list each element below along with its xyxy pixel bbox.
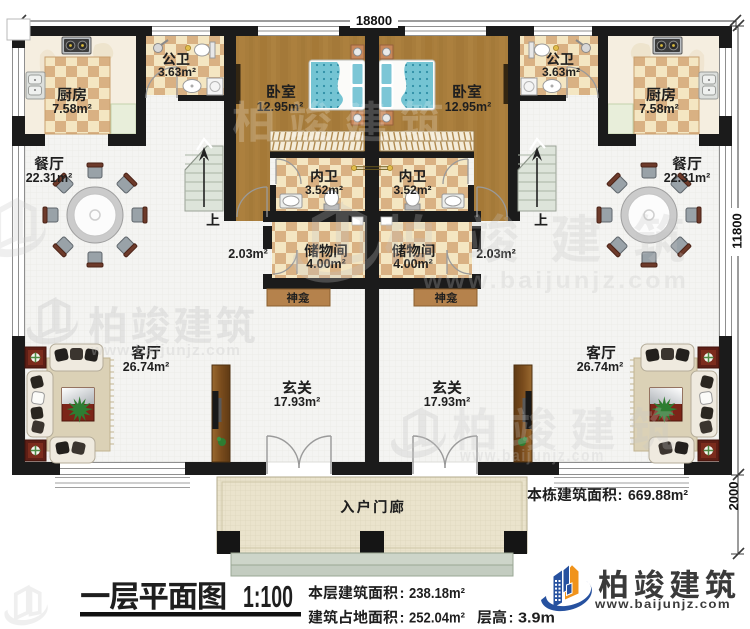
svg-text:252.04m²: 252.04m² [409,611,465,627]
svg-text:2000: 2000 [726,482,741,511]
svg-text:26.74m²: 26.74m² [577,360,624,374]
svg-text::: : [509,610,514,627]
svg-text:2.03m²: 2.03m² [228,247,268,261]
svg-text:18800: 18800 [356,13,392,28]
svg-text:22.31m²: 22.31m² [664,171,711,185]
svg-text:3.63m²: 3.63m² [542,65,580,79]
svg-text:12.95m²: 12.95m² [445,100,492,114]
svg-text::: : [400,585,405,602]
svg-text:7.58m²: 7.58m² [52,102,92,116]
svg-text:17.93m²: 17.93m² [274,395,321,409]
svg-text:www.baijunjz.com: www.baijunjz.com [459,446,605,465]
svg-text:3.63m²: 3.63m² [158,65,196,79]
svg-text:22.31m²: 22.31m² [26,171,73,185]
svg-text::: : [618,487,623,504]
svg-text:7.58m²: 7.58m² [639,102,679,116]
svg-text:3.9m: 3.9m [518,611,555,627]
svg-text:3.52m²: 3.52m² [393,183,431,197]
svg-text:www.baijunjz.com: www.baijunjz.com [422,267,689,293]
svg-text:3.52m²: 3.52m² [305,183,343,197]
svg-text::: : [400,610,405,627]
svg-text:11800: 11800 [730,213,745,248]
svg-text:26.74m²: 26.74m² [123,360,170,374]
svg-text:238.18m²: 238.18m² [409,586,465,602]
svg-text:1:100: 1:100 [243,579,293,614]
svg-text:www.baijunjz.com: www.baijunjz.com [594,599,731,611]
svg-text:www.baijunjz.com: www.baijunjz.com [90,342,241,359]
svg-text:669.88m²: 669.88m² [628,488,688,504]
svg-text:17.93m²: 17.93m² [424,395,471,409]
